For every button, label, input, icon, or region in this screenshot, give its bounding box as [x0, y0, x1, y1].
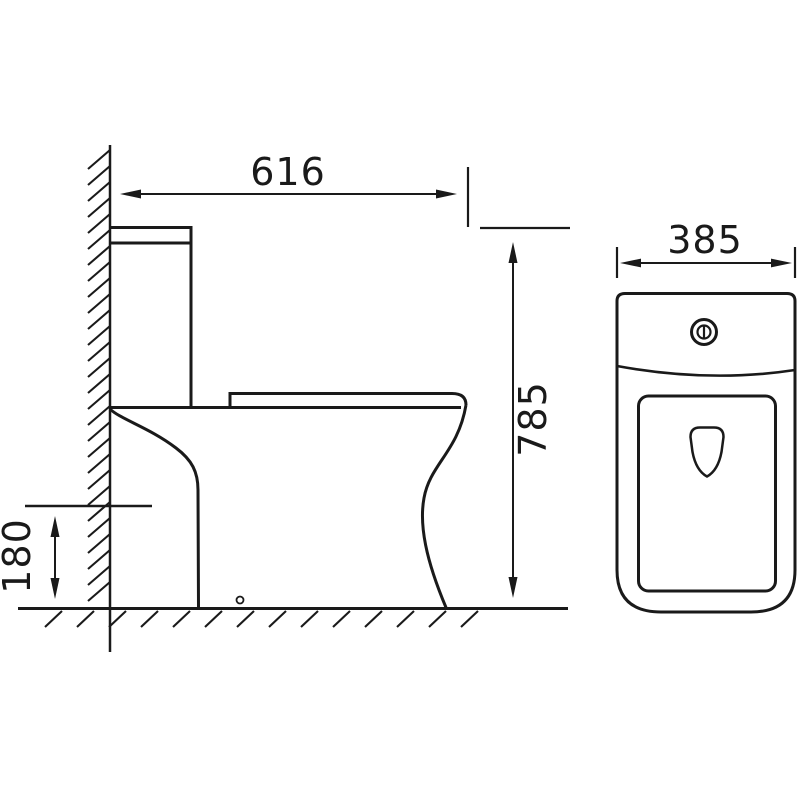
- hatch-line: [88, 358, 110, 377]
- hatch-line: [88, 566, 110, 585]
- dim-front-width: 385: [617, 218, 795, 278]
- arrowhead-right: [771, 259, 792, 268]
- hatch-line: [88, 550, 110, 569]
- hatch-line: [88, 390, 110, 409]
- arrowhead-down: [51, 578, 60, 599]
- bolt-cap: [237, 597, 244, 604]
- hatch-line: [88, 182, 110, 201]
- water-outlet-shape: [691, 428, 724, 477]
- hatch-line: [88, 406, 110, 425]
- body-outline: [617, 294, 795, 613]
- wall-hatching: [88, 150, 110, 601]
- side-view: [18, 145, 568, 652]
- dim-total-height: 785: [480, 228, 570, 598]
- hatch-line: [365, 611, 382, 627]
- hatch-line: [88, 262, 110, 281]
- hatch-line: [397, 611, 414, 627]
- hatch-line: [88, 518, 110, 537]
- pedestal-back-curve: [110, 409, 199, 608]
- hatch-line: [88, 278, 110, 297]
- hatch-line: [88, 214, 110, 233]
- hatch-line: [205, 611, 222, 627]
- arrowhead-right: [436, 190, 457, 199]
- hatch-line: [461, 611, 478, 627]
- hatch-line: [88, 342, 110, 361]
- dim-label-785: 785: [511, 381, 555, 457]
- hatch-line: [88, 470, 110, 489]
- hatch-line: [88, 294, 110, 313]
- front-view: [617, 294, 795, 613]
- hatch-line: [88, 246, 110, 265]
- arrowhead-left: [120, 190, 141, 199]
- hatch-line: [88, 438, 110, 457]
- hatch-line: [88, 374, 110, 393]
- hatch-line: [88, 486, 110, 505]
- hatch-line: [88, 198, 110, 217]
- hatch-line: [88, 230, 110, 249]
- hatch-line: [429, 611, 446, 627]
- rim-outline: [639, 396, 776, 591]
- dim-label-616: 616: [250, 150, 326, 194]
- hatch-line: [141, 611, 158, 627]
- hatch-line: [88, 454, 110, 473]
- hatch-line: [88, 310, 110, 329]
- hatch-line: [301, 611, 318, 627]
- arrowhead-left: [620, 259, 641, 268]
- hatch-line: [333, 611, 350, 627]
- hatch-line: [88, 166, 110, 185]
- hatch-line: [45, 611, 62, 627]
- bowl-front-curve: [422, 405, 466, 608]
- hatch-line: [88, 582, 110, 601]
- arrowhead-up: [51, 516, 60, 537]
- dim-side-depth: 616: [120, 150, 468, 227]
- hatch-line: [269, 611, 286, 627]
- tank-bottom-curve: [617, 366, 795, 376]
- dim-outlet-height: 180: [0, 506, 152, 599]
- arrowhead-down: [509, 577, 518, 598]
- hatch-line: [88, 326, 110, 345]
- drawing-canvas: 616 785 180 385: [0, 0, 800, 800]
- hatch-line: [88, 150, 110, 169]
- hatch-line: [173, 611, 190, 627]
- hatch-line: [109, 611, 126, 627]
- pan-ledge-and-seat-top: [110, 394, 466, 408]
- flush-button-detail: [692, 320, 717, 345]
- hatch-line: [237, 611, 254, 627]
- arrowhead-up: [509, 242, 518, 263]
- dim-label-385: 385: [667, 218, 743, 262]
- cistern-outline: [110, 228, 191, 408]
- hatch-line: [88, 534, 110, 553]
- hatch-line: [77, 611, 94, 627]
- hatch-line: [88, 422, 110, 441]
- toilet-dimension-diagram: 616 785 180 385: [0, 0, 800, 800]
- dim-label-180: 180: [0, 518, 39, 594]
